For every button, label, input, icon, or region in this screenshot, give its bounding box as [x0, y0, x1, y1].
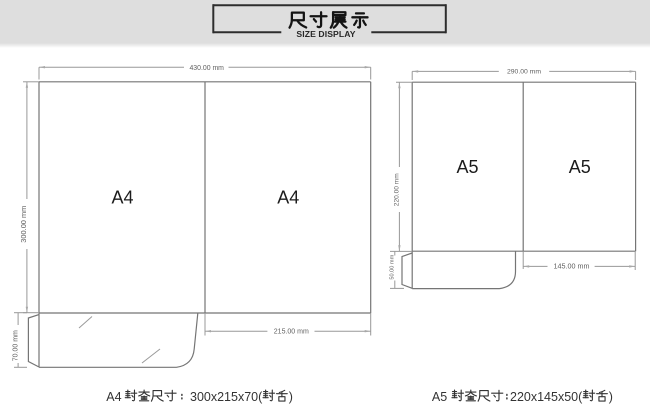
svg-text:A5: A5 [456, 157, 478, 177]
svg-text:50.00 mm: 50.00 mm [390, 254, 396, 279]
svg-text:SIZE DISPLAY: SIZE DISPLAY [296, 29, 355, 39]
svg-text:300x215x70(: 300x215x70( [190, 390, 263, 404]
svg-text:220x145x50(: 220x145x50( [510, 390, 583, 404]
svg-text:A5: A5 [569, 157, 591, 177]
svg-text:300.00 mm: 300.00 mm [19, 206, 28, 243]
svg-text:A4: A4 [111, 188, 133, 208]
svg-text:A4: A4 [106, 390, 121, 404]
svg-text:290.00 mm: 290.00 mm [507, 69, 541, 76]
svg-text:A5: A5 [432, 390, 447, 404]
svg-text:430.00 mm: 430.00 mm [189, 65, 224, 72]
svg-text:145.00 mm: 145.00 mm [554, 261, 590, 270]
svg-text:215.00 mm: 215.00 mm [274, 328, 309, 335]
svg-text:): ) [289, 390, 293, 404]
svg-text:A4: A4 [277, 188, 299, 208]
svg-text:): ) [609, 390, 613, 404]
svg-text:220.00 mm: 220.00 mm [394, 173, 401, 206]
svg-text:70.00 mm: 70.00 mm [12, 330, 19, 361]
